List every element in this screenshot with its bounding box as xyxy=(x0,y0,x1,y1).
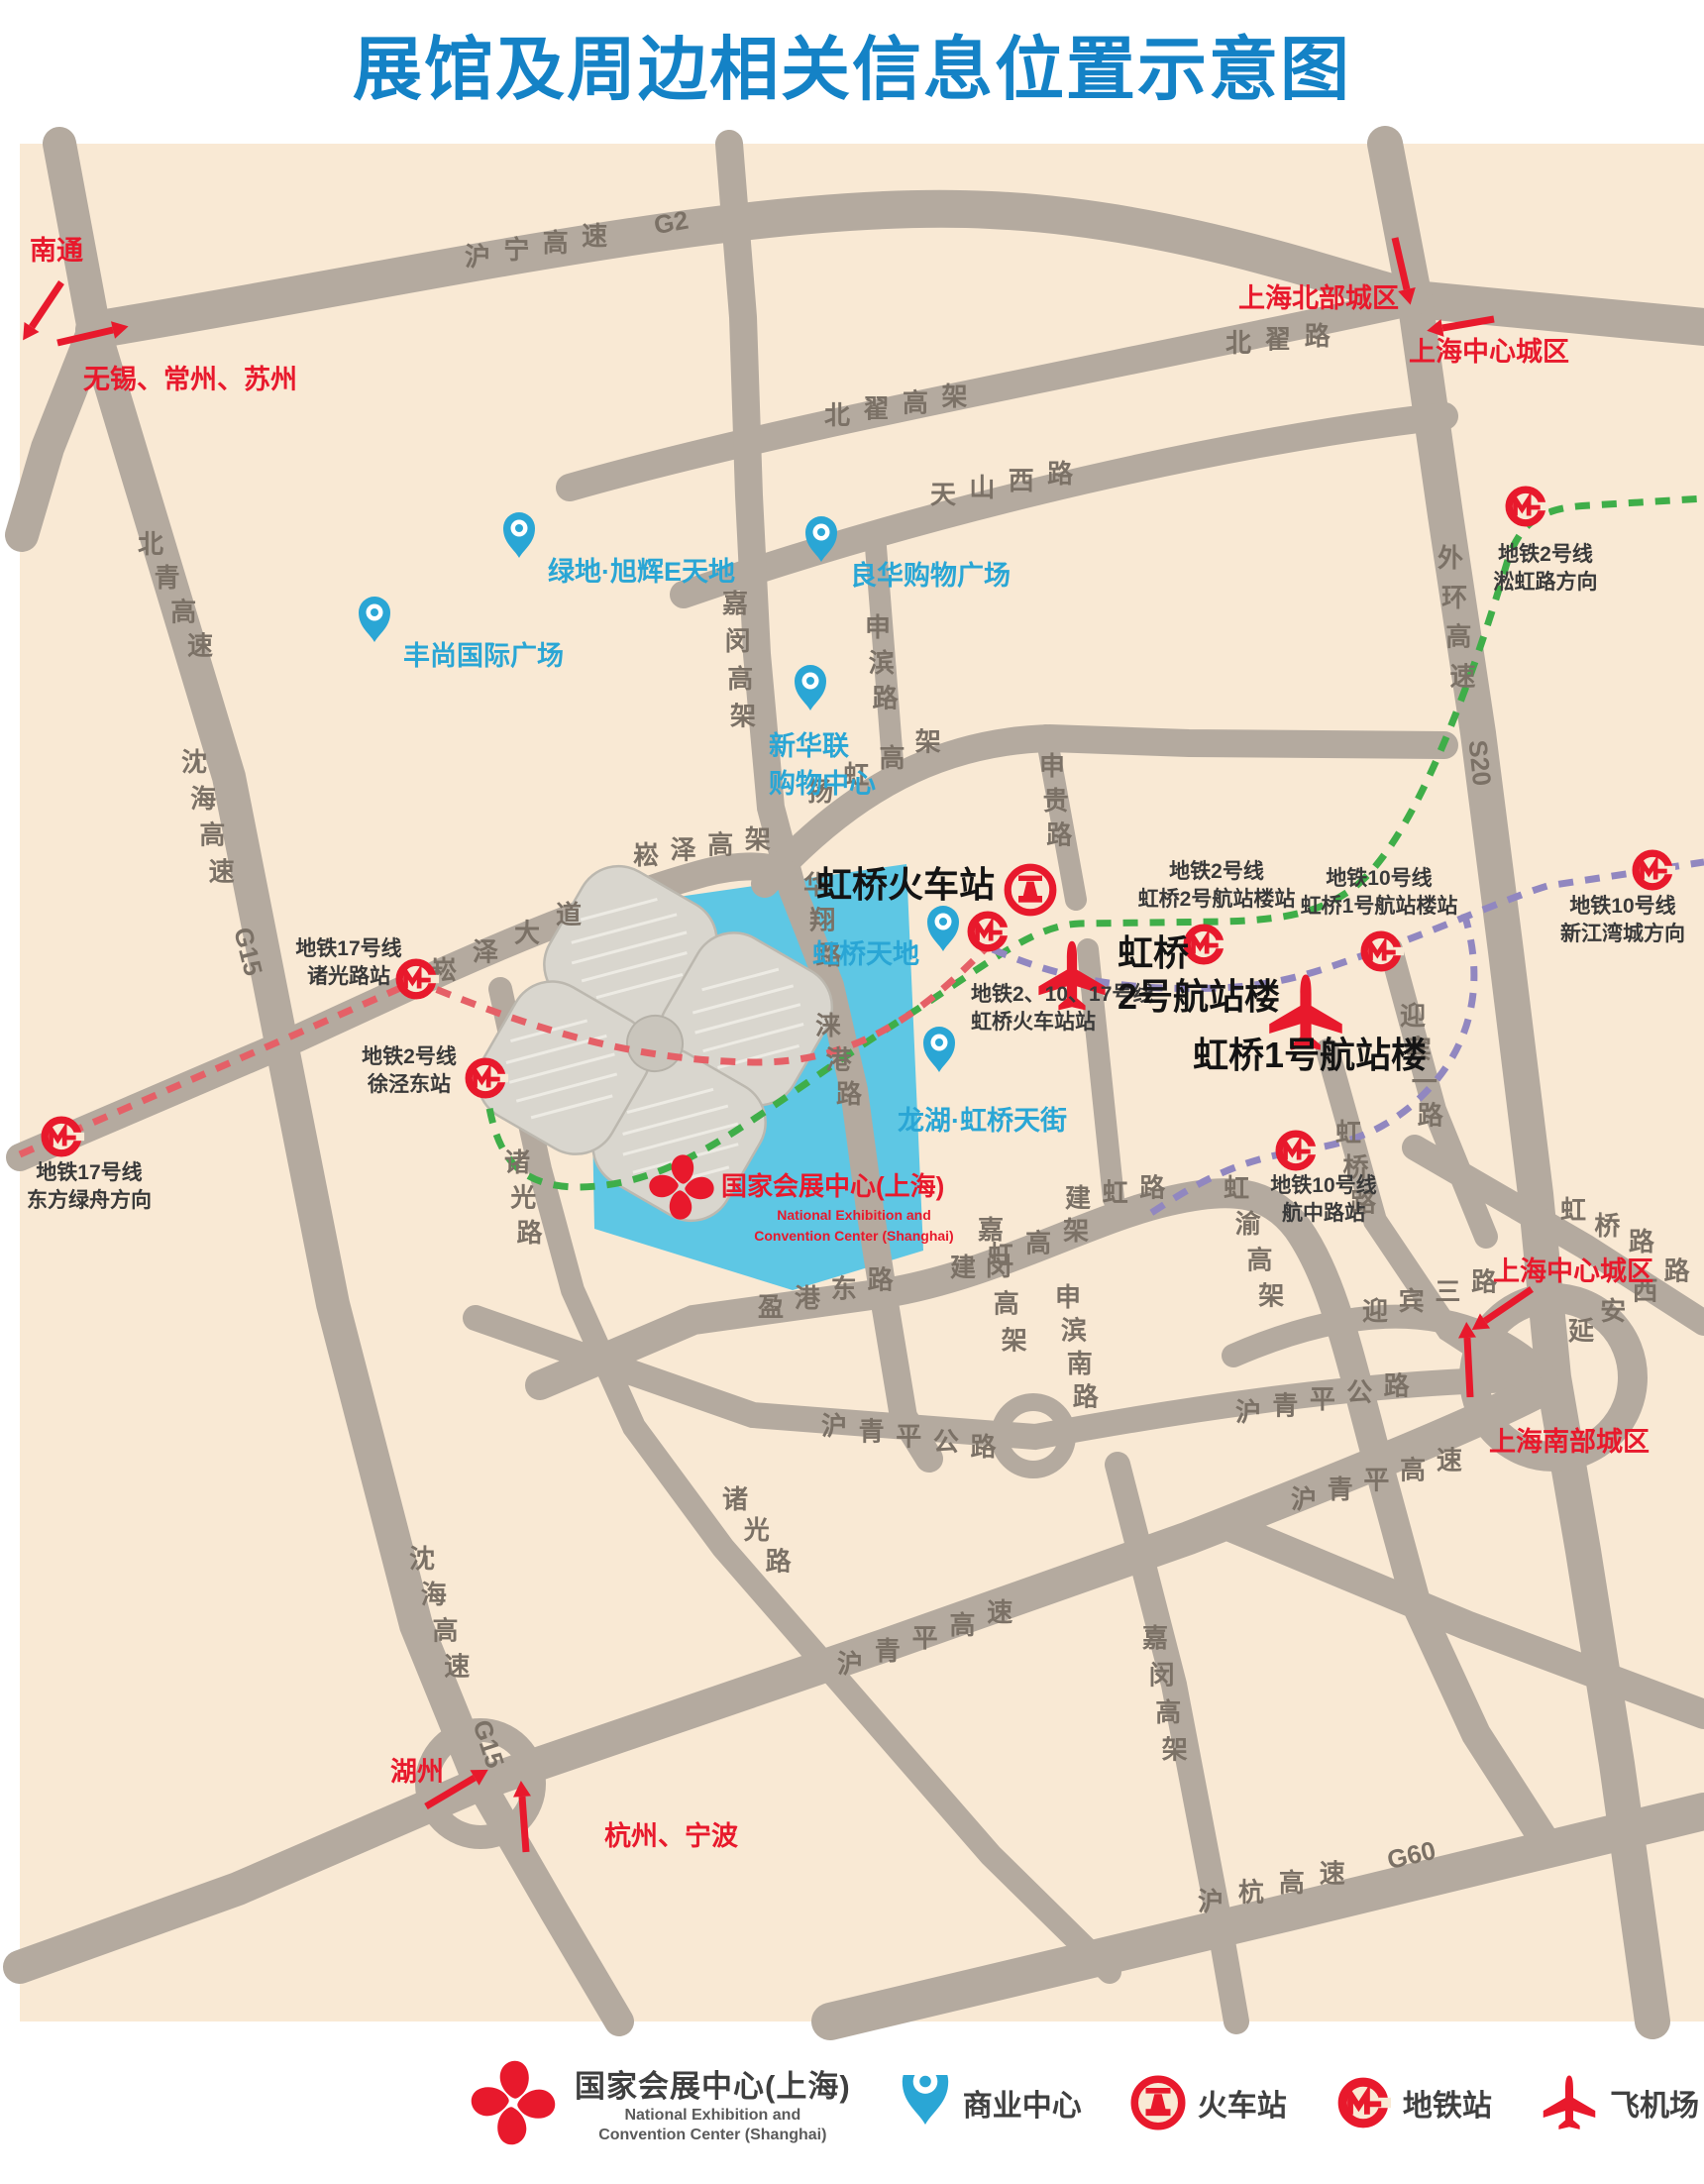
road-label-char: 路 xyxy=(1139,1172,1166,1202)
road-label-char: 宁 xyxy=(503,235,529,265)
city-label: 湖州 xyxy=(390,1757,444,1787)
road-label-char: 高 xyxy=(1400,1455,1426,1484)
road-label-char: 路 xyxy=(868,1264,895,1294)
road-label-char: 北 xyxy=(1225,328,1251,358)
road-label-char: 嘉 xyxy=(722,589,748,618)
transport-label: 2号航站楼 xyxy=(1118,976,1280,1017)
road-label-char: 闵 xyxy=(725,626,751,656)
road-label-char: 滨 xyxy=(1061,1315,1087,1345)
road-label-char: 高 xyxy=(879,743,905,773)
road-label-char: 闵 xyxy=(986,1252,1012,1281)
necc-flower-logo xyxy=(466,2053,561,2152)
metro-station-line1: 地铁2号线 xyxy=(362,1044,457,1068)
road-label-char: 沪 xyxy=(465,242,490,272)
road-label-char: 青 xyxy=(155,563,180,593)
road-label-char: 泽 xyxy=(473,936,498,966)
road-label-char: 建 xyxy=(950,1253,976,1282)
road-label-char: 滨 xyxy=(869,648,895,678)
road-label-char: 沪 xyxy=(1235,1397,1261,1427)
road-label-char: 崧 xyxy=(633,840,659,870)
road-label-char: 海 xyxy=(421,1580,447,1609)
road-label-char: 路 xyxy=(1305,321,1331,351)
road-label-char: 天 xyxy=(930,480,956,509)
road-label-char: 泽 xyxy=(671,835,696,865)
road-label-char: 外 xyxy=(1438,543,1463,573)
poi-label: 新华联 xyxy=(769,730,849,761)
road-label-char: 翔 xyxy=(809,905,835,934)
road-label-char: 西 xyxy=(1009,466,1034,495)
metro-station-line1: 地铁2号线 xyxy=(1498,542,1593,566)
road-label-char: 平 xyxy=(1363,1465,1389,1494)
road-label-char: 公 xyxy=(933,1427,959,1457)
poi-label: 龙湖·虹桥天街 xyxy=(898,1106,1067,1136)
legend-label-airport: 飞机场 xyxy=(1610,2081,1699,2125)
road-label-char: 速 xyxy=(1437,1446,1462,1475)
road-label-char: 沪 xyxy=(1291,1484,1317,1514)
legend: 国家会展中心(上海) National Exhibition and Conve… xyxy=(466,2053,1699,2152)
road-label-char: 迎 xyxy=(1362,1296,1388,1326)
transport-label: 虹桥火车站 xyxy=(816,864,995,905)
road-label-char: 公 xyxy=(1346,1377,1372,1407)
road-label-char: 路 xyxy=(1046,820,1073,850)
road-label-char: 道 xyxy=(556,900,582,929)
road-label-char: 高 xyxy=(543,228,569,258)
metro-station-line1: 地铁17号线 xyxy=(295,936,401,960)
poi-label: 购物中心 xyxy=(769,769,876,799)
road-label-char: 环 xyxy=(1441,583,1467,612)
road-label-char: 迎 xyxy=(1400,1001,1426,1031)
business-center-pin-icon xyxy=(900,2075,951,2130)
road-label-char: 东 xyxy=(831,1274,857,1304)
road-label-char: 架 xyxy=(745,824,771,854)
road-label-char: 嘉 xyxy=(1142,1623,1168,1653)
road-label-char: 申 xyxy=(1039,751,1065,781)
airplane-icon xyxy=(1541,2074,1598,2131)
legend-label-metro: 地铁站 xyxy=(1403,2081,1492,2125)
road-label-char: 虹 xyxy=(1103,1178,1128,1208)
road-label-char: 速 xyxy=(1450,661,1476,691)
road-label-char: 路 xyxy=(873,684,900,713)
road-label-char: 山 xyxy=(969,473,995,502)
legend-item-metro: 地铁站 xyxy=(1335,2075,1492,2130)
metro-station-line2: 徐泾东站 xyxy=(367,1072,451,1096)
road-label-char: 高 xyxy=(1445,622,1471,652)
legend-necc-en2: Convention Center (Shanghai) xyxy=(598,2127,826,2143)
road-label-char: 大 xyxy=(514,919,540,948)
metro-station-line2: 虹桥2号航站楼站 xyxy=(1138,887,1296,911)
city-label: 南通 xyxy=(30,236,83,266)
road-label-char: 建 xyxy=(1065,1183,1091,1213)
city-label: 无锡、常州、苏州 xyxy=(83,365,297,394)
road-label-char: 速 xyxy=(582,221,607,251)
road-label-char: 贵 xyxy=(1043,786,1069,816)
road-label-char: 北 xyxy=(824,400,850,430)
city-label: 上海中心城区 xyxy=(1493,1256,1653,1286)
metro-station-line2: 诸光路站 xyxy=(307,964,390,988)
transport-label: 虹桥 xyxy=(1118,932,1189,973)
road-label-char: 高 xyxy=(994,1288,1019,1318)
road-label-char: G2 xyxy=(652,205,691,241)
road-label-char: 高 xyxy=(727,664,753,694)
road-label-char: 嘉 xyxy=(978,1215,1004,1245)
road-label-char: 架 xyxy=(915,726,941,756)
road-label-char: 高 xyxy=(170,597,196,626)
metro-station-line2: 虹桥火车站站 xyxy=(971,1010,1096,1034)
road-label-char: 架 xyxy=(942,382,968,411)
road-label-char: 虹 xyxy=(1224,1173,1249,1203)
road-label-char: 高 xyxy=(949,1610,975,1640)
road-label-char: 港 xyxy=(826,1044,853,1074)
road-label-char: 光 xyxy=(743,1515,770,1545)
necc-name-en2: Convention Center (Shanghai) xyxy=(754,1228,953,1244)
transport-label: 虹桥1号航站楼 xyxy=(1193,1035,1427,1075)
road-label-char: 宾 xyxy=(1399,1286,1425,1316)
road-label-char: 申 xyxy=(865,612,891,642)
road-label-char: 速 xyxy=(187,630,213,660)
road-label-char: 渝 xyxy=(1235,1209,1261,1239)
train-station-icon xyxy=(1130,2075,1186,2130)
road-label-char: 速 xyxy=(444,1651,470,1681)
road-label-char: 闵 xyxy=(1149,1660,1175,1690)
road-label-char: 三 xyxy=(1435,1276,1460,1306)
road-label-char: 路 xyxy=(836,1079,863,1109)
road-label-char: 光 xyxy=(509,1182,536,1212)
metro-station-line2: 航中路站 xyxy=(1282,1201,1365,1225)
road-label-char: 桥 xyxy=(1594,1211,1621,1241)
road-label-char: 架 xyxy=(730,702,756,731)
metro-station-line1: 地铁10号线 xyxy=(1270,1173,1376,1197)
road-label-char: 高 xyxy=(1155,1697,1181,1727)
road-label-char: 路 xyxy=(1073,1381,1100,1411)
road-label-char: S20 xyxy=(1463,738,1498,787)
road-label-char: 南 xyxy=(1067,1349,1093,1378)
road-label-char: 虹 xyxy=(1335,1118,1361,1147)
road-label-char: 路 xyxy=(1664,1256,1691,1286)
road-label-char: 青 xyxy=(1328,1474,1353,1504)
poi-label: 良华购物广场 xyxy=(850,560,1011,591)
legend-item-train: 火车站 xyxy=(1130,2075,1287,2130)
road-label-char: 路 xyxy=(1629,1227,1655,1256)
road-label-char: 盈 xyxy=(757,1292,784,1322)
city-label: 上海北部城区 xyxy=(1238,282,1399,313)
metro-station-line2: 新江湾城方向 xyxy=(1560,922,1685,945)
road-label-char: 平 xyxy=(1310,1384,1335,1414)
road-label-char: 虹 xyxy=(1560,1195,1586,1225)
road-label-char: 高 xyxy=(707,829,733,859)
road-label-char: 青 xyxy=(1272,1390,1298,1420)
legend-item-airport: 飞机场 xyxy=(1541,2074,1699,2131)
metro-station-line2: 淞虹路方向 xyxy=(1494,570,1598,594)
legend-necc: 国家会展中心(上海) National Exhibition and Conve… xyxy=(466,2053,851,2152)
road-label-char: 路 xyxy=(971,1432,998,1462)
metro-station-line2: 东方绿舟方向 xyxy=(27,1188,152,1212)
road-label-char: 高 xyxy=(903,387,928,417)
road-label-char: 架 xyxy=(1258,1280,1284,1310)
road-label-char: 速 xyxy=(209,857,235,887)
road-label-char: 翟 xyxy=(863,394,889,424)
road-label-char: 北 xyxy=(138,529,163,559)
road-label-char: 翟 xyxy=(1265,325,1291,355)
road-label-char: 高 xyxy=(199,820,225,850)
road-label-char: 沪 xyxy=(821,1411,847,1441)
metro-station-line1: 地铁10号线 xyxy=(1326,866,1432,890)
road-label-char: 路 xyxy=(766,1546,793,1576)
poi-label: 丰尚国际广场 xyxy=(403,641,564,671)
road-label-char: 沪 xyxy=(837,1649,863,1679)
road-label-char: 申 xyxy=(1055,1282,1081,1312)
metro-station-line1: 地铁2号线 xyxy=(1169,859,1264,883)
road-label-char: 路 xyxy=(516,1218,543,1248)
road-label-char: 延 xyxy=(1567,1316,1595,1346)
road-label-char: 杭 xyxy=(1238,1878,1264,1908)
road-label-char: 速 xyxy=(1320,1859,1345,1889)
metro-station-line1: 地铁10号线 xyxy=(1569,894,1675,918)
road-label-char: 高 xyxy=(1279,1868,1305,1898)
road-label-char: 架 xyxy=(1063,1216,1089,1246)
metro-station-line1: 地铁17号线 xyxy=(36,1160,142,1184)
road-label-char: 安 xyxy=(1600,1296,1626,1326)
map-canvas: 国家会展中心(上海) National Exhibition and Conve… xyxy=(0,0,1704,2184)
road-label-char: 涞 xyxy=(815,1011,841,1040)
legend-necc-en: National Exhibition and Convention Cente… xyxy=(575,2106,851,2145)
road-label-char: 平 xyxy=(912,1623,938,1653)
city-label: 上海南部城区 xyxy=(1489,1426,1650,1457)
poi-label: 虹桥天地 xyxy=(812,939,919,969)
road-label-char: 高 xyxy=(432,1615,458,1645)
road-label-char: 沈 xyxy=(181,747,207,777)
poi-label: 绿地·旭辉E天地 xyxy=(548,557,735,587)
city-label: 杭州、宁波 xyxy=(604,1820,739,1851)
hongqiao-railway-station-icon xyxy=(1008,867,1053,913)
metro-station-line2: 虹桥1号航站楼站 xyxy=(1301,894,1458,918)
road-label-char: 青 xyxy=(859,1416,885,1446)
road-label-char: 海 xyxy=(190,784,216,814)
road-label-char: 路 xyxy=(1047,459,1074,489)
road-label-char: 速 xyxy=(987,1597,1012,1627)
road-label-char: 沪 xyxy=(1198,1887,1224,1916)
legend-label-train: 火车站 xyxy=(1198,2081,1287,2125)
road-label-char: 架 xyxy=(1162,1734,1188,1764)
road-label-char: 港 xyxy=(795,1283,821,1313)
necc-name-cn: 国家会展中心(上海) xyxy=(721,1171,944,1201)
legend-necc-cn: 国家会展中心(上海) xyxy=(575,2061,851,2106)
road-label-char: 平 xyxy=(896,1422,921,1452)
road-label-char: 高 xyxy=(1025,1228,1051,1257)
road-label-char: 诸 xyxy=(722,1484,748,1514)
legend-label-business: 商业中心 xyxy=(963,2081,1082,2125)
legend-item-business: 商业中心 xyxy=(900,2075,1082,2130)
road-label-char: 高 xyxy=(1246,1245,1272,1274)
road-label-char: 路 xyxy=(1384,1371,1411,1401)
road-label-char: 诸 xyxy=(504,1147,530,1177)
road-label-char: 沈 xyxy=(409,1544,435,1574)
road-label-char: 路 xyxy=(1418,1100,1444,1130)
legend-necc-en1: National Exhibition and xyxy=(624,2107,800,2124)
road-label-char: 青 xyxy=(875,1636,901,1666)
metro-station-icon xyxy=(1335,2075,1391,2130)
city-label: 上海中心城区 xyxy=(1409,337,1569,367)
road-label-char: 架 xyxy=(1002,1326,1027,1356)
necc-name-en1: National Exhibition and xyxy=(777,1207,931,1223)
